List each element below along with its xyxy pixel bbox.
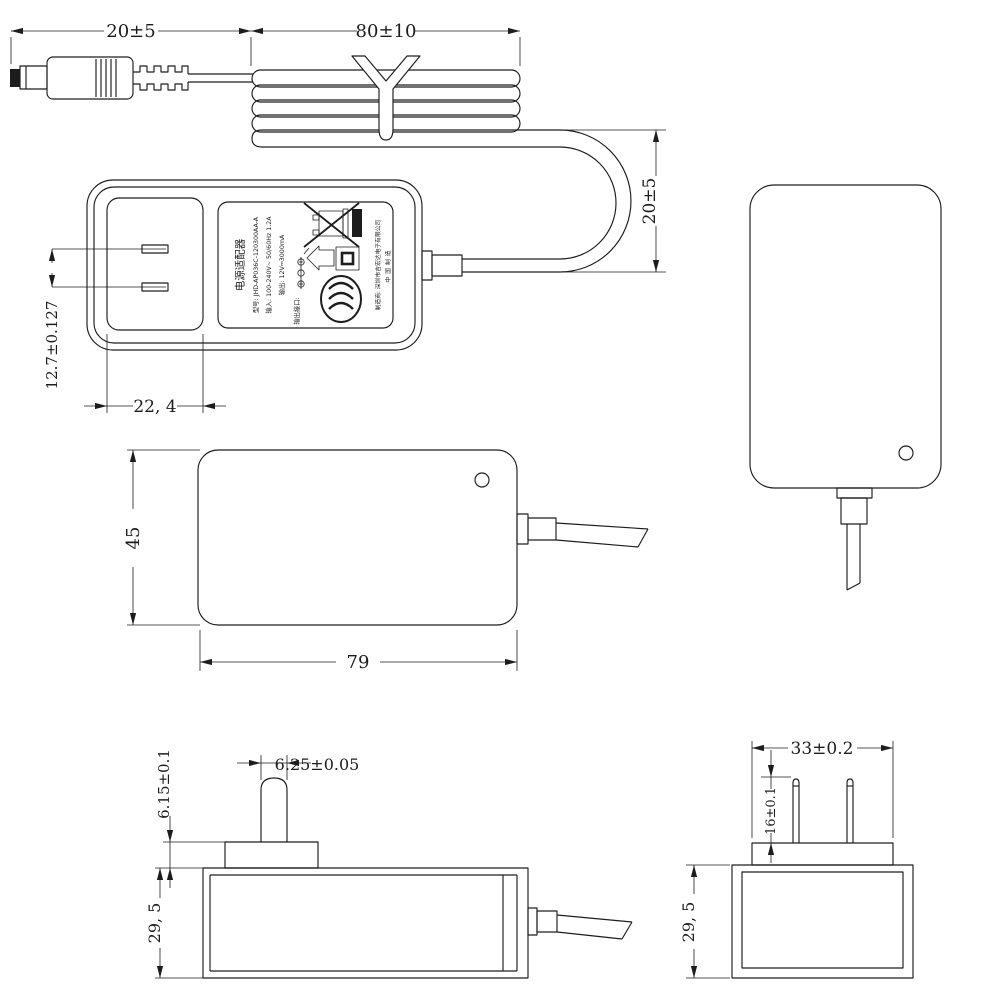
label-input-text: 输入: 100-240V~ 50/60Hz 1.2A bbox=[264, 216, 273, 314]
dim-plug-length-text: 20±5 bbox=[106, 21, 155, 42]
dim-pin-area-width-text: 22, 4 bbox=[133, 397, 176, 417]
weee-bar-icon bbox=[352, 209, 362, 237]
dim-side-body-height-text: 29, 5 bbox=[145, 903, 164, 944]
dim-base-height-text: 6.15±0.1 bbox=[155, 749, 173, 819]
dim-pin-pitch-text: 12.7±0.127 bbox=[43, 301, 61, 390]
adapter-dimensional-drawing: 20±5 80±10 20±5 电源适配器 型号: JHD-AP036C- bbox=[0, 0, 1000, 1000]
dim-height-text: 45 bbox=[123, 527, 144, 550]
label-output-text: 输出: 12V⎓3000mA bbox=[277, 234, 286, 295]
dim-pin-width-text: 6.25±0.05 bbox=[275, 755, 360, 774]
drawing-canvas: 20±5 80±10 20±5 电源适配器 型号: JHD-AP036C- bbox=[0, 0, 1000, 1000]
label-title-text: 电源适配器 bbox=[234, 238, 247, 291]
label-made-in-text: 中国制造 bbox=[384, 247, 392, 282]
dim-end-body-height-text: 29, 5 bbox=[679, 902, 698, 943]
dim-length-text: 79 bbox=[347, 652, 370, 673]
label-output-port-text: 输出接口: bbox=[292, 297, 301, 324]
label-manufacturer-text: 制造商: 深圳市吉宏达电子有限公司 bbox=[374, 219, 382, 310]
paper-background bbox=[0, 0, 1000, 1000]
dim-base-width-text: 33±0.2 bbox=[791, 739, 854, 759]
label-model-text: 型号: JHD-AP036C-120300AA-A bbox=[251, 216, 260, 313]
dim-loop-drop-text: 20±5 bbox=[640, 178, 660, 225]
dim-coil-length-text: 80±10 bbox=[356, 21, 417, 42]
dim-pin-length-text: 16±0.1 bbox=[764, 787, 779, 835]
plug-tip bbox=[10, 69, 20, 87]
